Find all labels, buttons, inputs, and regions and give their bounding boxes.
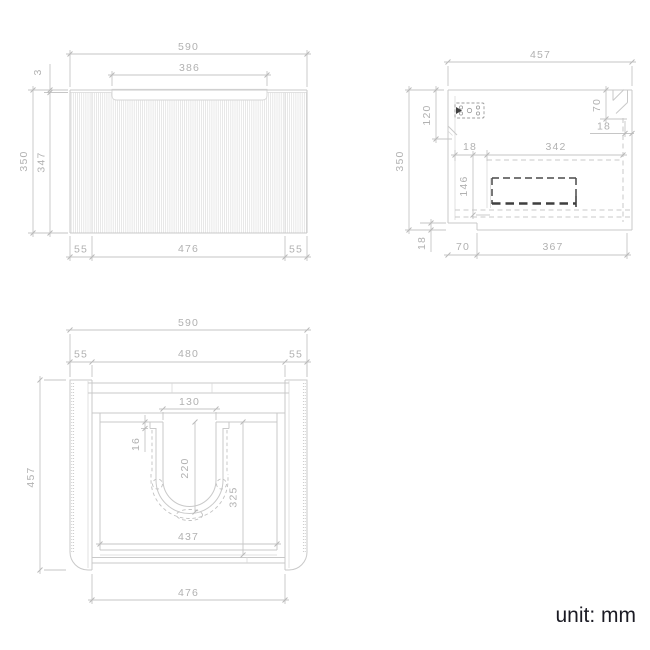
dim-plan-front-opening: 476 xyxy=(178,587,199,599)
dim-side-bottom-setback: 70 xyxy=(456,241,470,253)
dim-side-bottom-run: 367 xyxy=(542,241,563,253)
dim-front-bottom-right: 55 xyxy=(289,244,303,256)
dim-plan-cutout-width: 130 xyxy=(179,396,200,408)
dim-front-bottom-left: 55 xyxy=(74,244,88,256)
dim-side-back-gap: 18 xyxy=(463,141,477,153)
dim-plan-left-panel: 55 xyxy=(74,349,88,361)
handle-recess xyxy=(112,89,267,100)
fluted-texture xyxy=(71,93,306,233)
plan-dimensions: 590 55 480 55 457 xyxy=(25,317,311,604)
bracket-pointer-icon xyxy=(456,107,462,114)
dim-side-handle-drop: 70 xyxy=(591,98,603,112)
dim-plan-inner-width: 480 xyxy=(178,348,199,360)
side-dimensions: 457 350 120 70 18 xyxy=(394,49,636,259)
dim-side-front-thickness: 18 xyxy=(597,121,611,133)
dim-plan-overall-depth: 457 xyxy=(25,466,37,487)
front-view: 590 386 350 3 347 xyxy=(18,41,311,261)
dim-plan-inner-depth: 325 xyxy=(228,486,240,507)
dim-side-bottom-thickness: 18 xyxy=(416,236,428,250)
dim-front-top-reveal: 3 xyxy=(32,68,44,75)
dim-side-overall-depth: 457 xyxy=(530,49,551,61)
handle-profile xyxy=(613,90,628,114)
wall-bracket xyxy=(455,103,484,118)
dim-plan-right-panel: 55 xyxy=(289,349,303,361)
dim-plan-cutout-depth: 220 xyxy=(179,457,191,478)
dim-front-overall-width: 590 xyxy=(178,41,199,53)
dim-front-handle-width: 386 xyxy=(179,62,200,74)
dim-side-drawer-height: 146 xyxy=(458,175,470,196)
unit-note: unit: mm xyxy=(555,604,636,627)
dim-plan-lip-depth: 16 xyxy=(130,437,142,451)
dim-side-drawer-depth: 342 xyxy=(545,141,566,153)
front-dimensions: 590 386 350 3 347 xyxy=(18,41,311,261)
dim-side-overall-height: 350 xyxy=(394,150,406,171)
drawing-sheet: 590 386 350 3 347 xyxy=(0,0,650,650)
dim-front-bottom-center: 476 xyxy=(178,243,199,255)
dim-side-bracket-drop: 120 xyxy=(421,104,433,125)
side-view: 457 350 120 70 18 xyxy=(394,49,636,259)
dim-plan-inner-width-2: 437 xyxy=(178,531,199,543)
dim-plan-overall-width: 590 xyxy=(178,317,199,329)
dim-front-overall-height: 350 xyxy=(18,150,30,171)
plan-view: 590 55 480 55 457 xyxy=(25,317,311,604)
vanity-technical-drawing: 590 386 350 3 347 xyxy=(0,0,650,650)
dim-front-panel-height: 347 xyxy=(36,151,48,172)
